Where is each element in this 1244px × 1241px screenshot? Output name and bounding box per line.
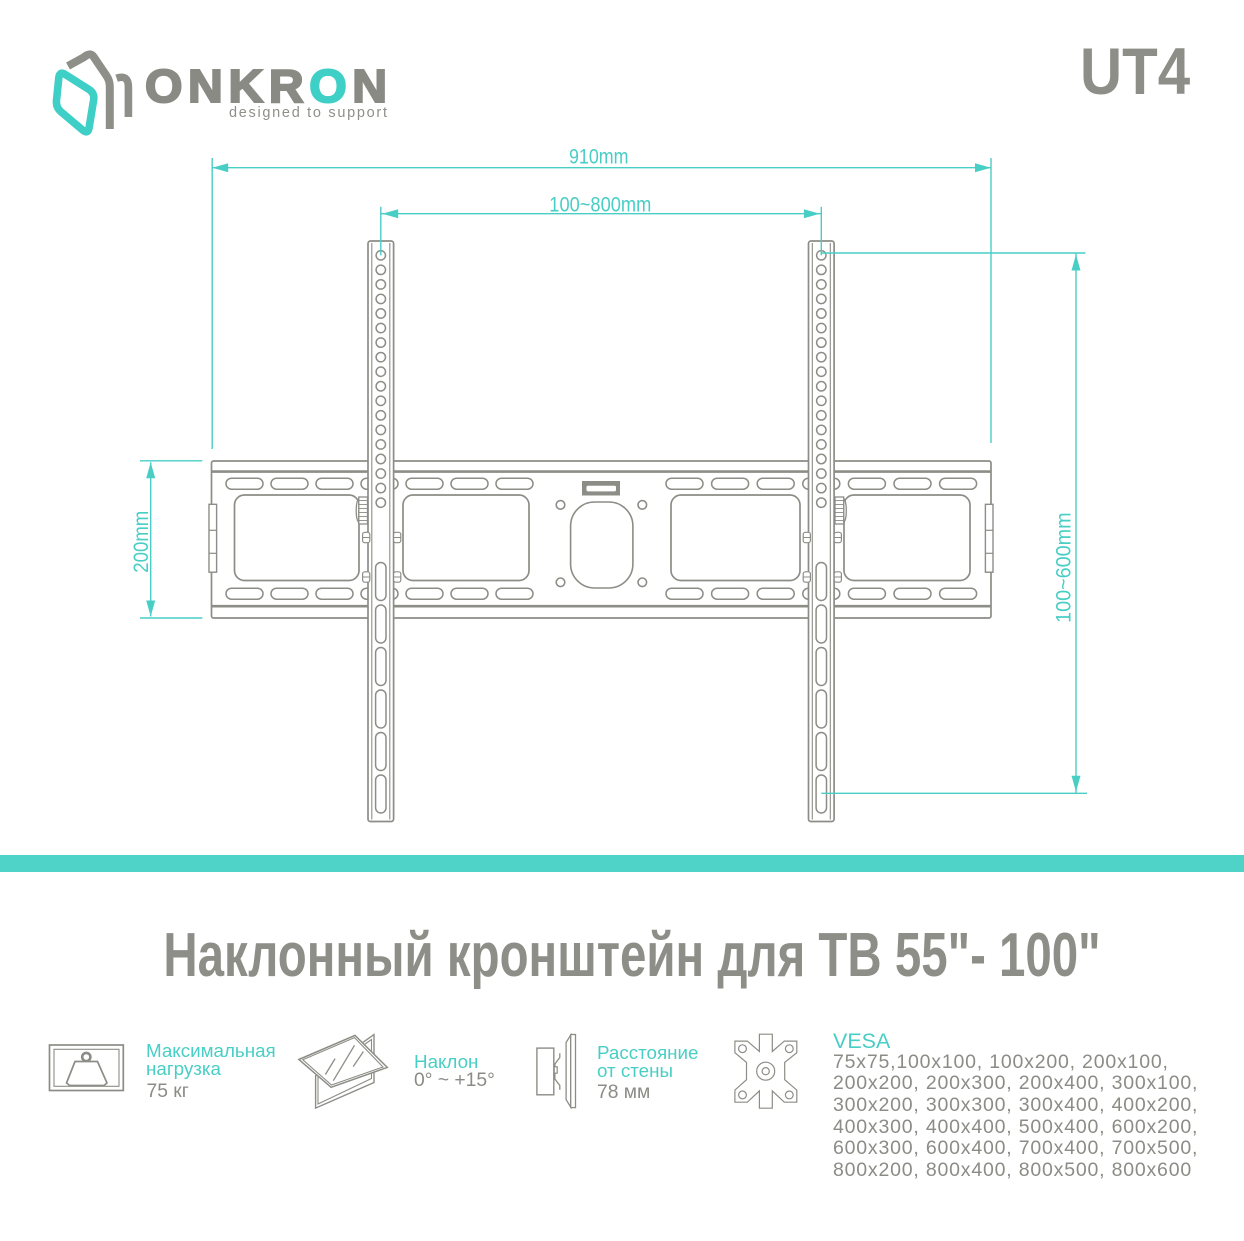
- svg-text:910mm: 910mm: [569, 145, 629, 168]
- svg-text:100~600mm: 100~600mm: [1053, 512, 1076, 623]
- svg-text:100~800mm: 100~800mm: [549, 193, 651, 216]
- svg-text:200mm: 200mm: [130, 511, 153, 573]
